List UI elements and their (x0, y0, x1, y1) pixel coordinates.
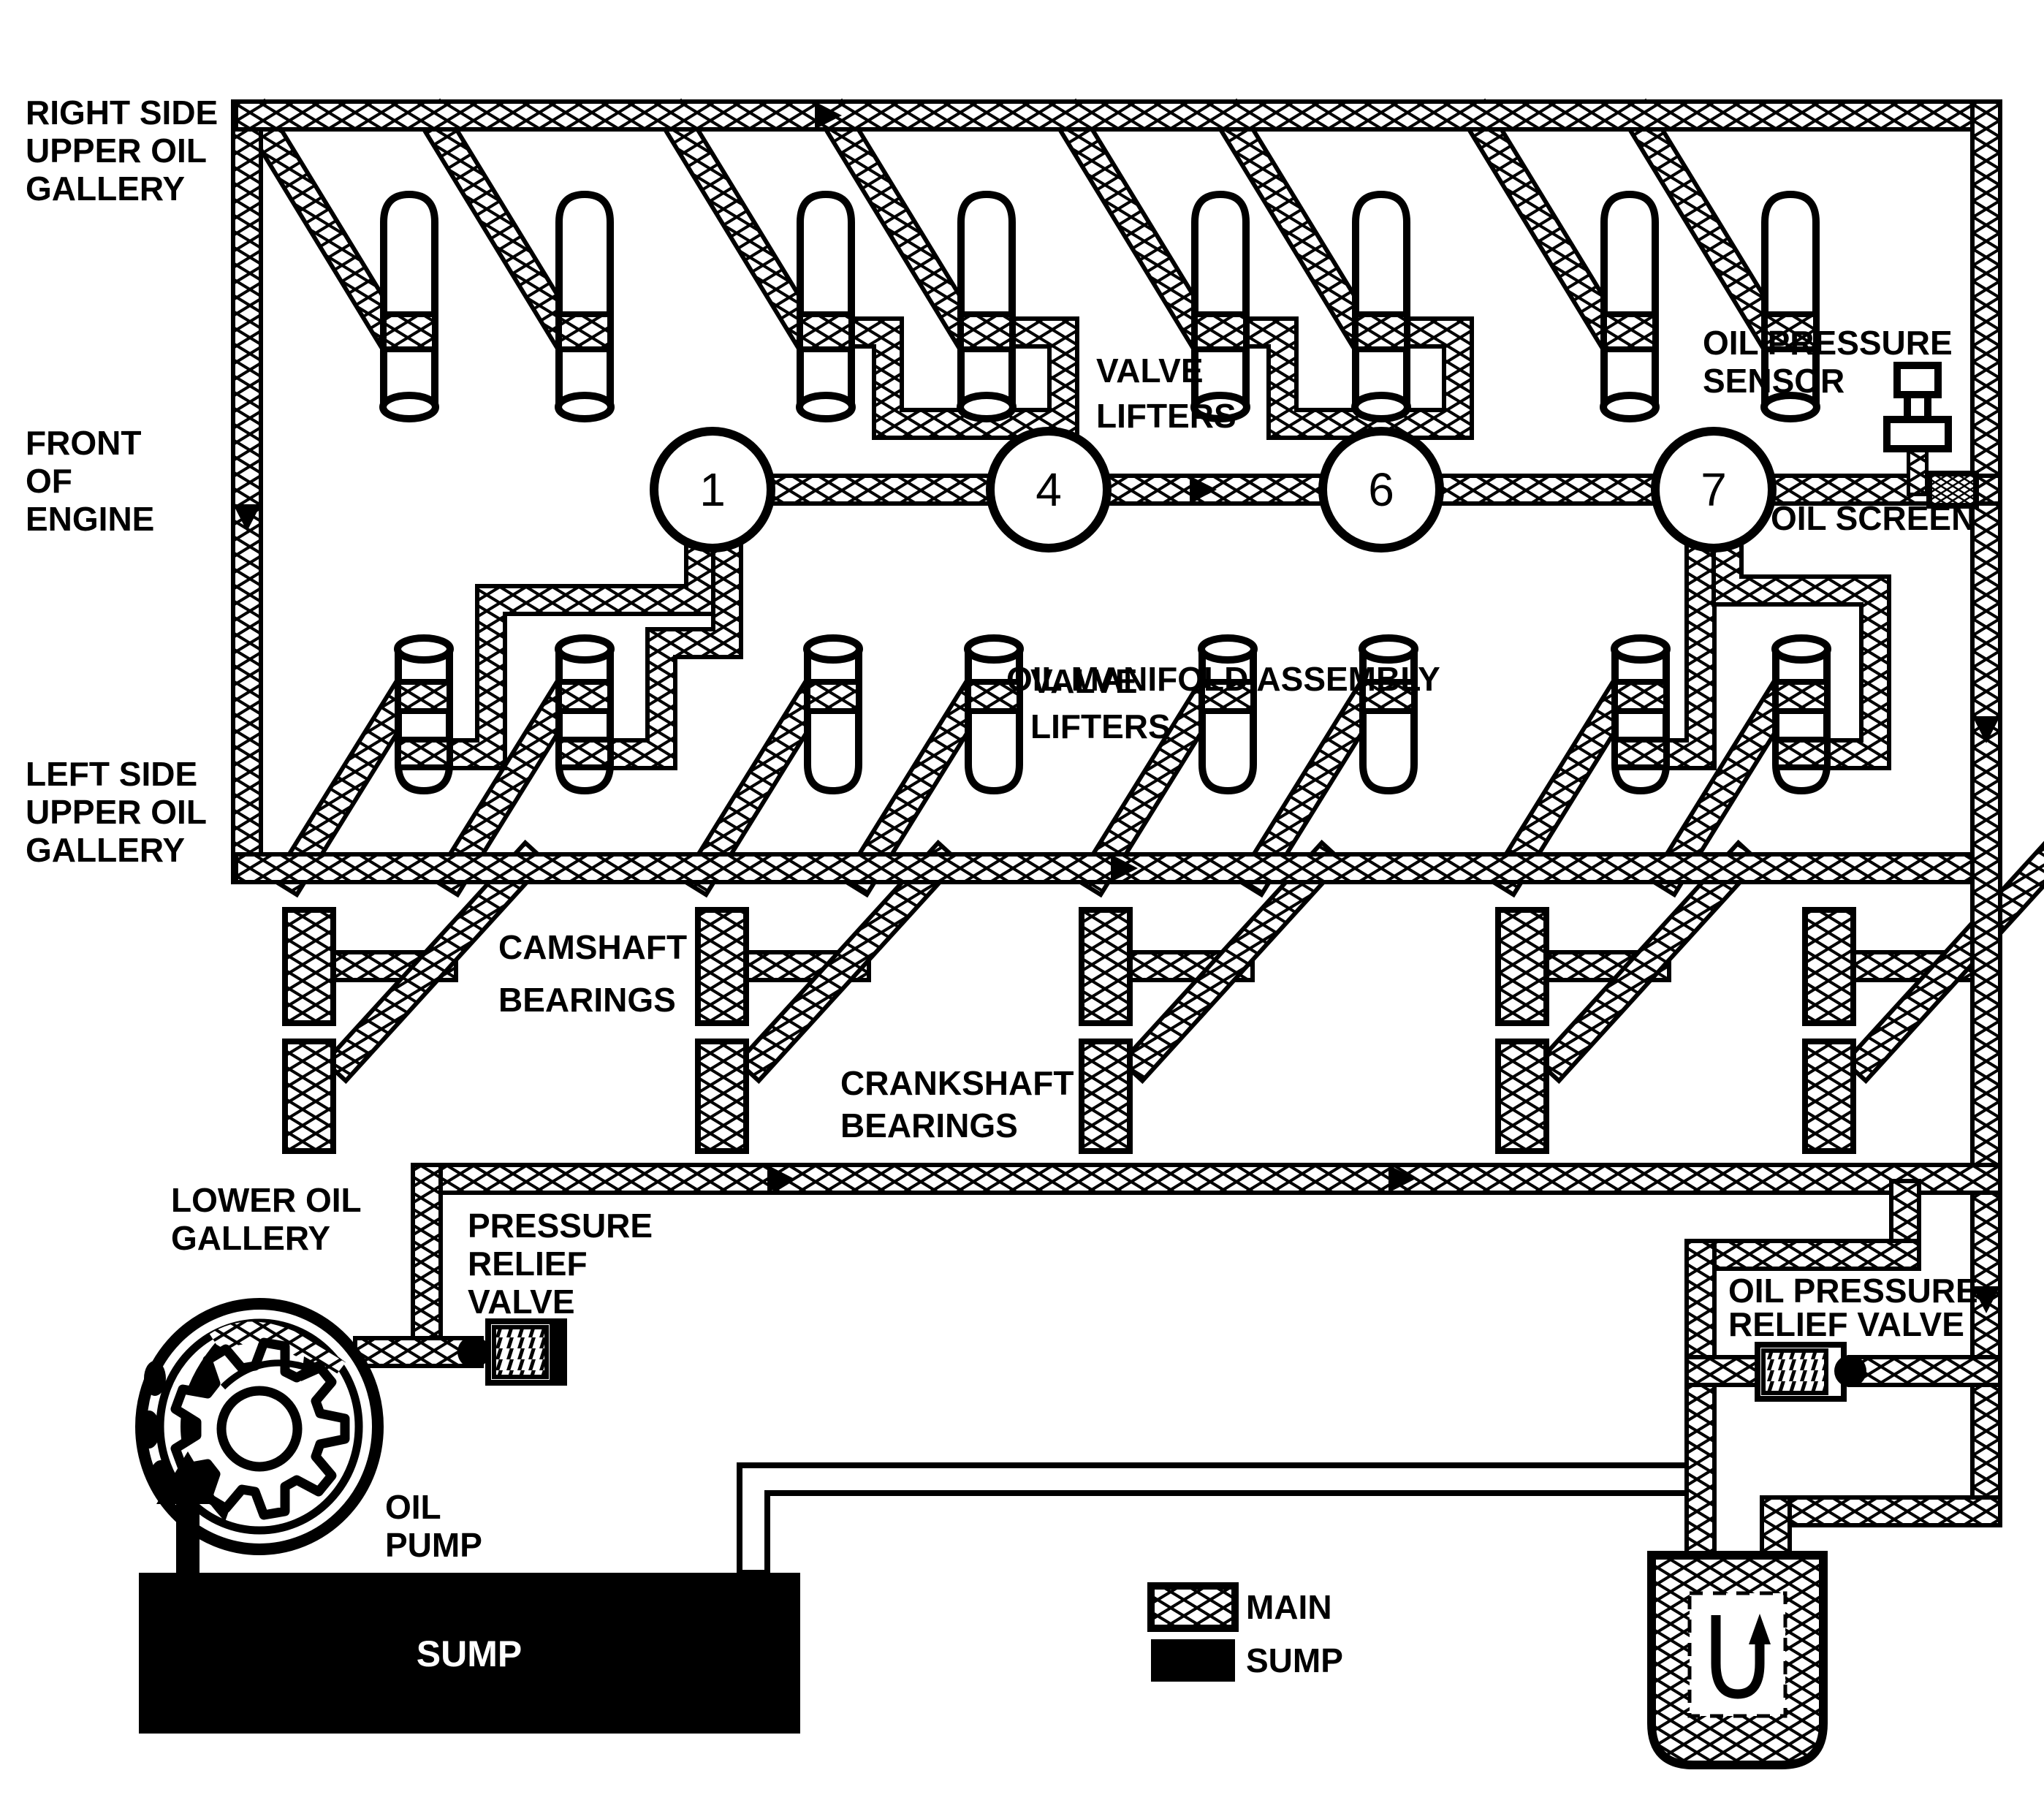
sump-label: SUMP (417, 1633, 522, 1674)
valve-lifter (398, 638, 450, 791)
manifold-port-number: 6 (1368, 463, 1394, 516)
manifold-port-number: 1 (699, 463, 726, 516)
label-oil-pressure-sensor: OIL PRESSURE (1703, 324, 1953, 362)
camshaft-bearing (1498, 910, 1546, 1023)
manifold-port-number: 4 (1036, 463, 1062, 516)
label-right-gallery: RIGHT SIDE (26, 94, 218, 132)
svg-text:BEARINGS: BEARINGS (498, 981, 676, 1019)
valve-lifter (799, 194, 852, 419)
relief-valve-ball (1834, 1355, 1866, 1387)
svg-text:RELIEF: RELIEF (468, 1245, 588, 1283)
oil-filter (1652, 1555, 1823, 1765)
label-lower-oil-gallery: LOWER OIL (171, 1181, 362, 1219)
crankshaft-bearing (698, 1041, 746, 1151)
legend-label-main: MAIN (1246, 1588, 1332, 1626)
svg-text:LIFTERS: LIFTERS (1030, 707, 1171, 745)
relief-valve-ball (457, 1336, 490, 1368)
svg-text:GALLERY: GALLERY (26, 170, 185, 208)
sump: SUMP (139, 1573, 800, 1734)
camshaft-bearing (285, 910, 333, 1023)
crankshaft-bearing (285, 1041, 333, 1151)
label-crankshaft-bearings: CRANKSHAFT (840, 1064, 1074, 1102)
svg-text:LIFTERS: LIFTERS (1096, 397, 1236, 435)
svg-text:GALLERY: GALLERY (26, 831, 185, 869)
camshaft-bearing (1082, 910, 1130, 1023)
label-pressure-relief-valve: PRESSURE (468, 1207, 653, 1245)
label-oil-screen: OIL SCREEN (1771, 499, 1975, 537)
svg-text:SENSOR: SENSOR (1703, 362, 1844, 400)
svg-text:UPPER OIL: UPPER OIL (26, 793, 207, 831)
svg-text:RELIEF VALVE: RELIEF VALVE (1728, 1305, 1964, 1343)
camshaft-bearing (698, 910, 746, 1023)
valve-lifter (558, 194, 611, 419)
oil-pump (138, 1304, 378, 1549)
crankshaft-bearing (1805, 1041, 1853, 1151)
crankshaft-bearing (1498, 1041, 1546, 1151)
valve-lifter (1603, 194, 1656, 419)
label-valve-lifters-top: VALVE (1096, 352, 1204, 390)
valve-lifter (558, 638, 611, 791)
label-front-of-engine: FRONT (26, 424, 141, 462)
svg-text:PUMP: PUMP (385, 1526, 482, 1564)
label-oil-pump: OIL (385, 1488, 441, 1526)
svg-text:ENGINE: ENGINE (26, 500, 154, 538)
valve-lifter (960, 194, 1013, 419)
legend-label-sump: SUMP (1246, 1641, 1343, 1679)
svg-text:GALLERY: GALLERY (171, 1219, 330, 1257)
valve-lifter (1614, 638, 1667, 791)
valve-lifter (1355, 194, 1407, 419)
valve-lifter (807, 638, 859, 791)
valve-lifter (383, 194, 436, 419)
manifold-port-number: 7 (1701, 463, 1727, 516)
svg-text:BEARINGS: BEARINGS (840, 1106, 1018, 1144)
svg-text:UPPER OIL: UPPER OIL (26, 132, 207, 170)
crankshaft-bearing (1082, 1041, 1130, 1151)
label-oil-pressure-relief-valve: OIL PRESSURE (1728, 1272, 1978, 1310)
legend-swatch-main (1151, 1586, 1235, 1628)
label-left-gallery: LEFT SIDE (26, 755, 197, 793)
camshaft-bearing (1805, 910, 1853, 1023)
legend-swatch-sump (1151, 1639, 1235, 1682)
svg-text:VALVE: VALVE (468, 1283, 575, 1321)
valve-lifter (1775, 638, 1828, 791)
svg-text:OF: OF (26, 462, 72, 500)
label-oil-manifold: OIL MANIFOLD ASSEMBLY (1006, 660, 1440, 698)
label-camshaft-bearings: CAMSHAFT (498, 928, 687, 966)
pump-gear-hub (221, 1391, 297, 1467)
engine-lubrication-diagram: 1 4 6 7 (0, 0, 2044, 1811)
